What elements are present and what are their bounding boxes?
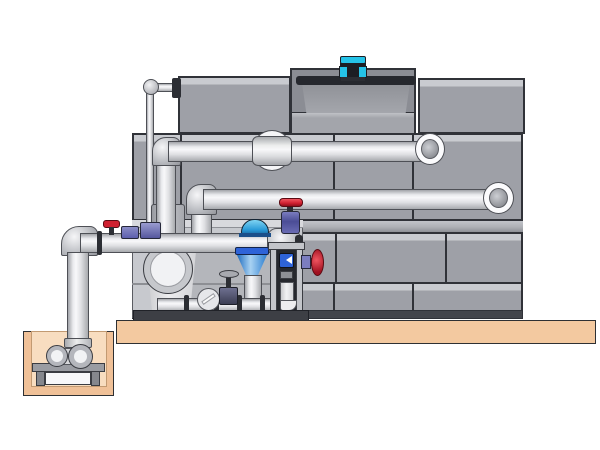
fan-motor: [339, 56, 367, 81]
cluster-lever-valve-stem: [109, 227, 114, 235]
vent-wall-flange: [172, 78, 181, 98]
casing-top-right-box: [418, 78, 525, 134]
upper-pipe-sleeve: [252, 136, 292, 166]
mid-pipe-wall-elbow-bore: [489, 188, 508, 208]
fan-recess-front-band: [292, 112, 414, 133]
globe-valve-handwheel: [279, 198, 303, 207]
stand-gauge-block: [280, 271, 293, 279]
casing-panel: [412, 282, 523, 312]
cone-flange: [235, 247, 269, 255]
sump-pump-frame: [45, 372, 91, 385]
pipe-flange: [97, 231, 102, 255]
illustration-canvas: [0, 0, 600, 450]
sump-pump-bowl-left-face: [51, 350, 63, 362]
casing-panel: [300, 282, 335, 312]
fan-cowl: [302, 83, 410, 113]
side-valve-handwheel: [311, 249, 324, 276]
sump-pump-leg-right: [91, 371, 100, 386]
cluster-valve-block-1: [121, 226, 139, 239]
gate-valve-body: [219, 287, 238, 305]
pump-inlet-face: [150, 251, 186, 287]
suction-drop-pipe: [67, 252, 89, 342]
stand-blue-unit: [279, 253, 294, 268]
globe-valve-body: [281, 211, 300, 234]
left-arrow-icon: [282, 256, 292, 264]
check-valve-slash: [201, 293, 216, 305]
vent-line-elbow: [143, 79, 159, 95]
butterfly-valve-base: [239, 233, 271, 237]
gate-valve-handwheel: [219, 270, 239, 278]
stand-post-left: [270, 249, 277, 315]
upper-return-pipe: [168, 141, 424, 162]
upper-pipe-wall-elbow-bore: [421, 139, 439, 159]
cluster-valve-block-2: [140, 222, 161, 239]
side-valve-bonnet: [301, 255, 311, 269]
mid-return-pipe: [203, 189, 491, 210]
casing-top-left-panel: [178, 76, 291, 134]
sump-pump-leg-left: [36, 371, 45, 386]
casing-panel: [335, 232, 447, 284]
sump-pump-bowl-right-face: [74, 350, 87, 363]
casing-panel: [445, 232, 523, 284]
casing-panel: [333, 282, 414, 312]
fan-motor-window: [347, 67, 359, 77]
concrete-slab: [116, 320, 596, 344]
check-valve-cap: [197, 288, 220, 311]
gate-valve-stem: [226, 277, 231, 288]
fan-motor-feet: [341, 77, 365, 81]
